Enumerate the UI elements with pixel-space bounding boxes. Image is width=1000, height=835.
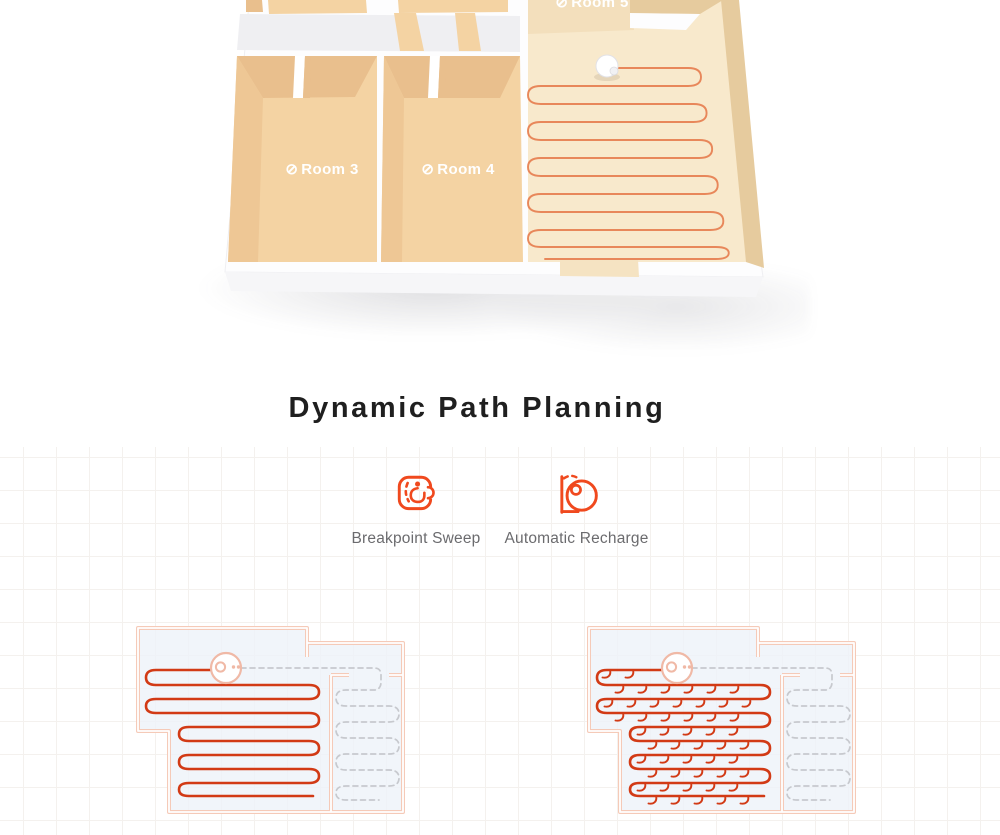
room5-check-icon: ⊘ [555, 0, 568, 11]
path-diagram-zigzag-sweep [584, 626, 865, 818]
room5-label: ⊘Room 5 [555, 0, 628, 11]
floorplan-room-3 [228, 56, 377, 262]
top-room-stub-a [268, 0, 367, 14]
robot-bumper [610, 67, 618, 75]
features-row: Breakpoint Sweep Automatic Recharge [0, 471, 1000, 548]
room-outline-fill [589, 628, 854, 812]
room4-check-icon: ⊘ [421, 161, 434, 178]
floorplan-illustration: ⊘Room 5 ⊘Room 3 ⊘Room 4 [0, 0, 1000, 370]
room4-wall-stub [428, 56, 440, 98]
robot-icon [662, 653, 692, 683]
floorplan-room-5 [528, 0, 764, 277]
floorplan-room-4 [381, 56, 523, 262]
room3-label: ⊘Room 3 [285, 161, 358, 178]
robot-icon [211, 653, 241, 683]
path-diagram-normal-sweep [133, 626, 414, 818]
top-room-stub-left [246, 0, 263, 12]
feature-automatic-recharge: Automatic Recharge [504, 471, 648, 548]
bottom-doorway-notch [560, 258, 639, 277]
feature-breakpoint-sweep: Breakpoint Sweep [351, 471, 480, 548]
room-outline-fill [138, 628, 403, 812]
breakpoint-sweep-icon [393, 471, 439, 517]
feature-label: Automatic Recharge [504, 530, 648, 548]
page-title: Dynamic Path Planning [0, 392, 1000, 425]
feature-label: Breakpoint Sweep [351, 530, 480, 548]
room4-wall-shade [384, 56, 520, 98]
room3-wall-stub [293, 56, 305, 98]
top-room-stub-b [398, 0, 508, 13]
automatic-recharge-icon [554, 471, 600, 517]
room3-check-icon: ⊘ [285, 161, 298, 178]
room4-label: ⊘Room 4 [421, 161, 495, 178]
